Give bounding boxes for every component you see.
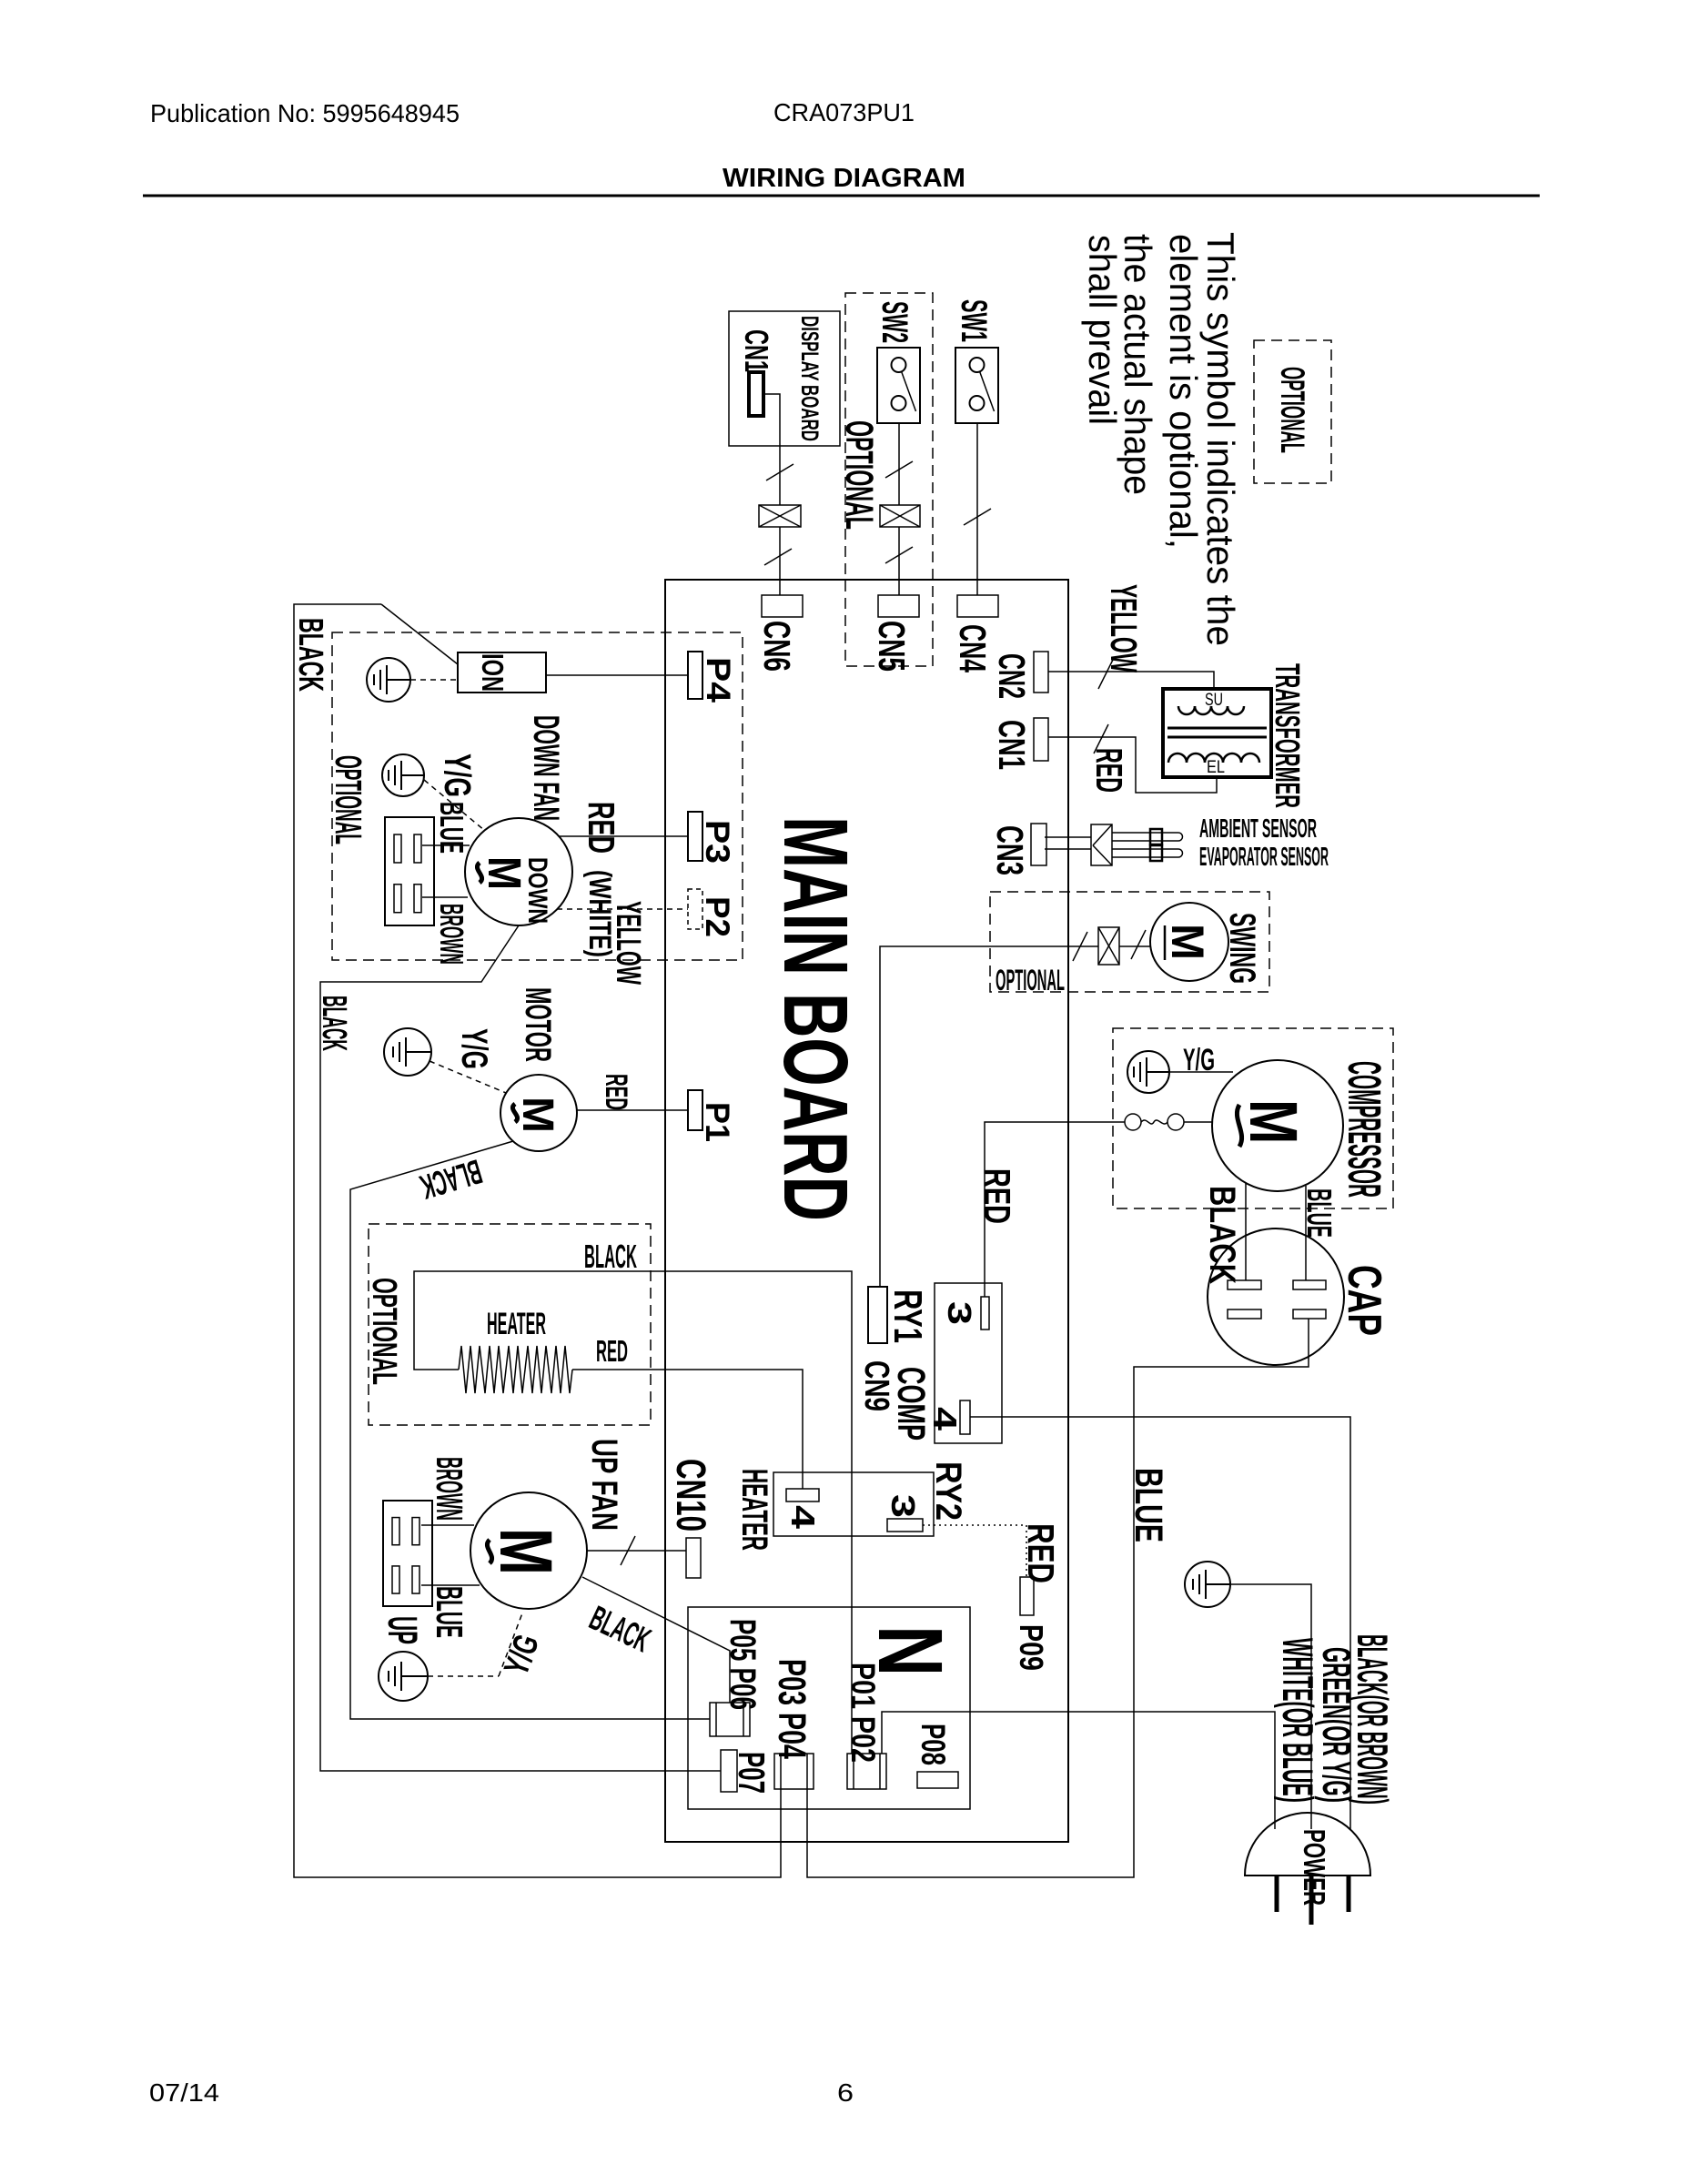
svg-text:CRA073PU1: CRA073PU1 <box>773 98 915 126</box>
svg-text:P05 P06: P05 P06 <box>723 1619 763 1710</box>
svg-text:SWING: SWING <box>1222 913 1262 984</box>
svg-text:OPTIONAL: OPTIONAL <box>1274 367 1311 453</box>
svg-text:BLUE: BLUE <box>429 1586 470 1638</box>
svg-text:M: M <box>513 1097 561 1133</box>
svg-text:DISPLAY BOARD: DISPLAY BOARD <box>796 316 824 441</box>
svg-text:UP FAN: UP FAN <box>584 1439 624 1531</box>
svg-text:BLACK: BLACK <box>1202 1186 1242 1284</box>
svg-text:P2: P2 <box>699 896 736 937</box>
svg-text:DOWN: DOWN <box>522 857 552 924</box>
svg-text:P4: P4 <box>700 657 737 703</box>
svg-text:RED: RED <box>599 1074 633 1110</box>
svg-text:AMBIENT SENSOR: AMBIENT SENSOR <box>1199 814 1317 844</box>
svg-text:RED: RED <box>1020 1523 1062 1583</box>
svg-text:BLACK(OR BROWN): BLACK(OR BROWN) <box>1349 1634 1397 1805</box>
svg-text:4: 4 <box>784 1505 822 1529</box>
svg-text:P09: P09 <box>1013 1624 1050 1671</box>
svg-text:Publication No: 5995648945: Publication No: 5995648945 <box>150 99 460 127</box>
svg-text:DOWN FAN: DOWN FAN <box>526 715 566 821</box>
svg-text:BROWN: BROWN <box>433 904 470 965</box>
svg-text:Y/G: Y/G <box>454 1028 494 1069</box>
svg-text:BLACK: BLACK <box>291 618 329 692</box>
svg-text:SW1: SW1 <box>954 299 994 342</box>
svg-text:RED: RED <box>976 1168 1018 1224</box>
svg-text:M: M <box>484 1528 567 1575</box>
svg-text:OPTIONAL: OPTIONAL <box>996 964 1065 996</box>
svg-text:P08: P08 <box>915 1724 952 1765</box>
svg-text:EVAPORATOR SENSOR: EVAPORATOR SENSOR <box>1199 843 1329 872</box>
svg-text:SW2: SW2 <box>874 301 915 343</box>
svg-text:HEATER: HEATER <box>734 1469 774 1551</box>
svg-text:BROWN: BROWN <box>429 1457 470 1521</box>
svg-text:CN5: CN5 <box>871 621 913 672</box>
svg-text:Y/G: Y/G <box>437 753 479 797</box>
svg-text:3: 3 <box>884 1494 922 1518</box>
svg-text:COMP: COMP <box>889 1367 933 1441</box>
svg-text:TRANSFORMER: TRANSFORMER <box>1268 663 1306 808</box>
svg-text:RED: RED <box>596 1334 628 1368</box>
svg-text:ION: ION <box>476 653 510 692</box>
svg-text:OPTIONAL: OPTIONAL <box>328 755 369 844</box>
svg-text:BLACK: BLACK <box>584 1238 637 1275</box>
svg-text:shall prevail: shall prevail <box>1081 235 1124 425</box>
svg-text:UP: UP <box>379 1616 426 1644</box>
svg-text:Y/G: Y/G <box>1183 1043 1215 1077</box>
svg-text:M: M <box>1162 924 1212 960</box>
svg-text:This symbol indicates the: This symbol indicates the <box>1199 232 1242 646</box>
svg-text:OPTIONAL: OPTIONAL <box>365 1278 403 1385</box>
svg-text:CN6: CN6 <box>756 621 798 672</box>
svg-text:P1: P1 <box>699 1102 736 1142</box>
svg-text:07/14: 07/14 <box>149 2078 219 2107</box>
svg-text:EL: EL <box>1207 758 1225 777</box>
svg-text:3: 3 <box>941 1301 978 1325</box>
svg-text:OPTIONAL: OPTIONAL <box>837 420 881 530</box>
svg-text:CN1: CN1 <box>991 720 1033 770</box>
svg-text:MAIN BOARD: MAIN BOARD <box>764 816 866 1221</box>
svg-text:WIRING DIAGRAM: WIRING DIAGRAM <box>723 164 965 193</box>
svg-text:4: 4 <box>926 1407 964 1431</box>
svg-text:CN4: CN4 <box>952 624 994 672</box>
svg-text:CN2: CN2 <box>991 653 1033 699</box>
svg-text:CAP: CAP <box>1338 1265 1390 1336</box>
svg-text:M: M <box>478 856 530 890</box>
svg-text:YELLOW: YELLOW <box>1103 584 1145 672</box>
svg-text:SU: SU <box>1205 691 1223 710</box>
svg-text:CN3: CN3 <box>989 825 1031 875</box>
svg-text:6: 6 <box>837 2078 854 2107</box>
svg-text:HEATER: HEATER <box>487 1307 546 1341</box>
svg-text:M: M <box>1235 1099 1310 1144</box>
svg-text:RY1: RY1 <box>885 1289 930 1343</box>
svg-text:P03 P04: P03 P04 <box>770 1659 814 1759</box>
svg-text:BLACK: BLACK <box>315 996 353 1051</box>
svg-text:element is optional,: element is optional, <box>1162 234 1205 549</box>
svg-text:CN10: CN10 <box>668 1459 714 1532</box>
svg-text:BLUE: BLUE <box>1127 1468 1170 1542</box>
svg-text:RY2: RY2 <box>928 1461 968 1521</box>
svg-text:BLUE: BLUE <box>433 802 470 854</box>
svg-text:MOTOR: MOTOR <box>518 987 558 1062</box>
svg-text:POWER: POWER <box>1298 1829 1331 1906</box>
svg-text:RED: RED <box>1088 748 1130 793</box>
svg-text:RED: RED <box>581 802 622 854</box>
svg-text:P3: P3 <box>699 820 736 864</box>
svg-text:P01 P02: P01 P02 <box>844 1663 882 1763</box>
svg-text:COMPRESSOR: COMPRESSOR <box>1339 1061 1390 1198</box>
svg-text:CN1: CN1 <box>738 329 775 372</box>
svg-text:BLUE: BLUE <box>1299 1188 1338 1238</box>
svg-text:P07: P07 <box>731 1752 773 1794</box>
svg-text:YELLOW: YELLOW <box>609 901 647 985</box>
